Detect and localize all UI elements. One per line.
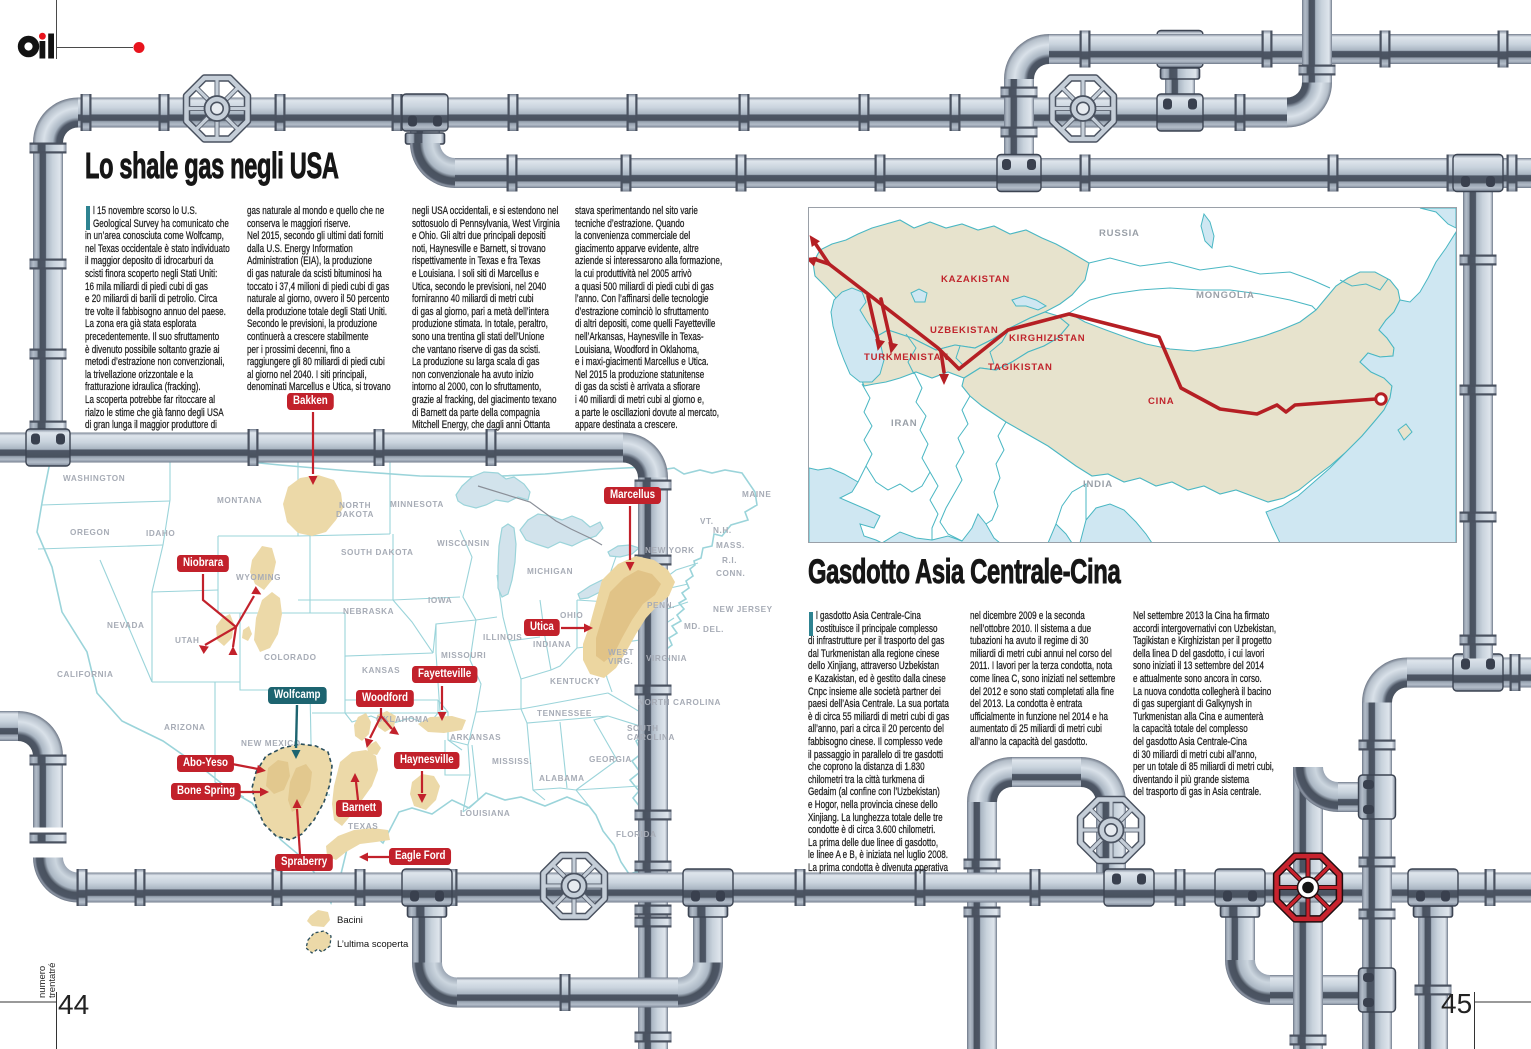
svg-text:R.I.: R.I. [722, 556, 737, 565]
svg-text:CONN.: CONN. [716, 569, 745, 578]
svg-text:N.H.: N.H. [713, 526, 732, 535]
svg-text:MICHIGAN: MICHIGAN [527, 567, 573, 576]
svg-text:CINA: CINA [1148, 396, 1174, 407]
svg-text:VIRG.: VIRG. [608, 657, 633, 666]
svg-text:MONTANA: MONTANA [217, 496, 262, 505]
svg-text:MISSOURI: MISSOURI [441, 651, 486, 660]
svg-text:CALIFORNIA: CALIFORNIA [57, 670, 113, 679]
svg-text:Bacini: Bacini [337, 915, 363, 926]
svg-text:WYOMING: WYOMING [236, 573, 281, 582]
svg-text:NEW YORK: NEW YORK [645, 546, 695, 555]
svg-text:ALABAMA: ALABAMA [539, 774, 585, 783]
svg-text:ARKANSAS: ARKANSAS [450, 733, 501, 742]
svg-text:MASS.: MASS. [716, 541, 745, 550]
svg-text:PENN.: PENN. [647, 601, 675, 610]
svg-text:KANSAS: KANSAS [362, 666, 400, 675]
svg-text:RUSSIA: RUSSIA [1099, 228, 1140, 239]
svg-text:DAKOTA: DAKOTA [336, 510, 374, 519]
svg-text:MD.: MD. [684, 622, 701, 631]
svg-text:GEORGIA: GEORGIA [589, 755, 632, 764]
svg-text:INDIA: INDIA [1083, 479, 1113, 490]
svg-text:VT.: VT. [700, 517, 714, 526]
svg-text:SOUTH: SOUTH [627, 724, 659, 733]
svg-text:LOUISIANA: LOUISIANA [460, 809, 510, 818]
svg-text:DEL.: DEL. [703, 625, 724, 634]
svg-text:FLORIDA: FLORIDA [616, 830, 657, 839]
svg-text:TURKMENISTAN: TURKMENISTAN [864, 352, 949, 363]
svg-text:TAGIKISTAN: TAGIKISTAN [988, 362, 1053, 373]
svg-text:NEW MEXICO: NEW MEXICO [241, 739, 301, 748]
svg-text:L’ultima scoperta: L’ultima scoperta [337, 939, 409, 950]
svg-text:COLORADO: COLORADO [264, 653, 317, 662]
svg-text:NORTH CAROLINA: NORTH CAROLINA [638, 698, 721, 707]
svg-text:OHIO: OHIO [560, 611, 583, 620]
svg-text:KAZAKISTAN: KAZAKISTAN [941, 274, 1010, 285]
svg-text:MINNESOTA: MINNESOTA [390, 500, 444, 509]
svg-text:NORTH: NORTH [339, 501, 371, 510]
svg-text:NEBRASKA: NEBRASKA [343, 607, 394, 616]
svg-text:MAINE: MAINE [742, 490, 771, 499]
svg-text:TEXAS: TEXAS [348, 822, 378, 831]
svg-text:ARIZONA: ARIZONA [164, 723, 206, 732]
svg-text:KENTUCKY: KENTUCKY [550, 677, 600, 686]
svg-text:CAROLINA: CAROLINA [627, 733, 675, 742]
svg-text:OREGON: OREGON [70, 528, 110, 537]
svg-text:MONGOLIA: MONGOLIA [1196, 290, 1255, 301]
svg-text:INDIANA: INDIANA [533, 640, 571, 649]
svg-text:WEST: WEST [608, 648, 634, 657]
svg-text:UZBEKISTAN: UZBEKISTAN [930, 325, 999, 336]
svg-text:MISSISS.: MISSISS. [492, 757, 532, 766]
svg-text:SOUTH DAKOTA: SOUTH DAKOTA [341, 548, 414, 557]
svg-text:IRAN: IRAN [891, 418, 917, 429]
svg-text:WISCONSIN: WISCONSIN [437, 539, 490, 548]
svg-text:VIRGINIA: VIRGINIA [646, 654, 687, 663]
svg-text:TENNESSEE: TENNESSEE [537, 709, 592, 718]
svg-text:KIRGHIZISTAN: KIRGHIZISTAN [1009, 333, 1085, 344]
svg-text:NEVADA: NEVADA [107, 621, 145, 630]
svg-text:NEW JERSEY: NEW JERSEY [713, 605, 773, 614]
svg-text:IDAHO: IDAHO [146, 529, 175, 538]
svg-text:IOWA: IOWA [428, 596, 452, 605]
svg-text:WASHINGTON: WASHINGTON [63, 474, 125, 483]
svg-text:ILLINOIS: ILLINOIS [483, 633, 522, 642]
svg-text:UTAH: UTAH [175, 636, 200, 645]
